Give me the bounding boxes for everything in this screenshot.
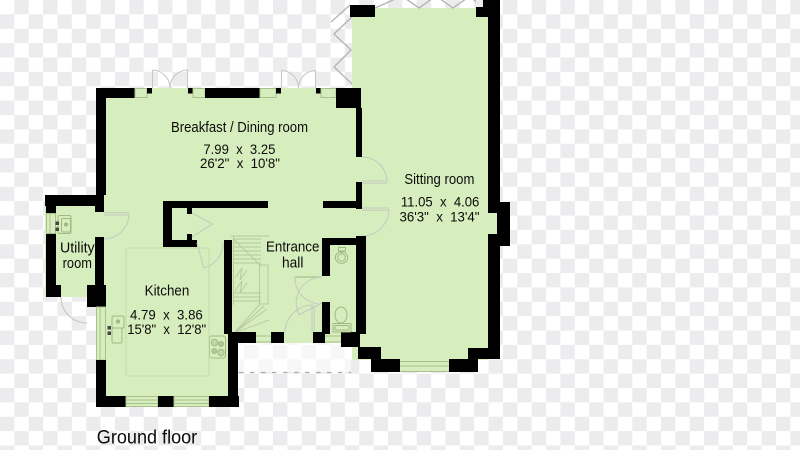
svg-text:Ground floor: Ground floor: [97, 428, 198, 449]
svg-text:Entrance: Entrance: [266, 238, 319, 255]
svg-text:Breakfast / Dining room: Breakfast / Dining room: [171, 119, 308, 136]
svg-text:hall: hall: [282, 255, 303, 272]
svg-text:11.05 x 4.06: 11.05 x 4.06: [401, 194, 480, 210]
svg-text:Utility: Utility: [60, 239, 95, 256]
svg-text:15'8" x 12'8": 15'8" x 12'8": [127, 321, 206, 337]
svg-text:36'3" x 13'4": 36'3" x 13'4": [400, 209, 480, 225]
svg-text:room: room: [63, 255, 92, 272]
svg-text:26'2" x 10'8": 26'2" x 10'8": [200, 155, 280, 171]
svg-text:Kitchen: Kitchen: [145, 282, 190, 299]
svg-text:Sitting room: Sitting room: [404, 171, 474, 188]
